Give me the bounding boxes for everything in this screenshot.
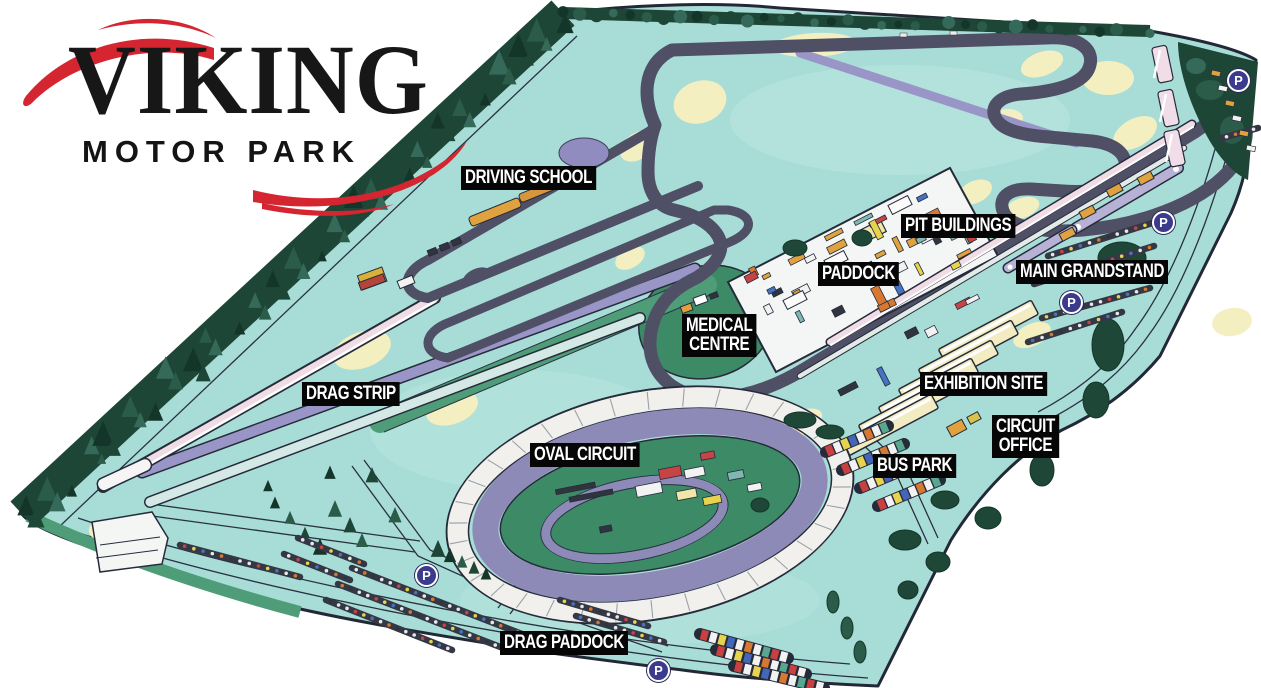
parking-icon: P [1152, 211, 1175, 234]
parking-icon: P [1227, 69, 1250, 92]
parking-icon: P [1060, 291, 1083, 314]
label-bus-park: BUS PARK [873, 454, 956, 478]
logo-subtitle: MOTOR PARK [82, 134, 361, 170]
logo: VIKING MOTOR PARK [10, 4, 500, 229]
map-canvas: DRIVING SCHOOL PIT BUILDINGS PADDOCK MAI… [0, 0, 1261, 688]
label-circuit-office: CIRCUIT OFFICE [992, 415, 1059, 458]
skid-pad [559, 138, 609, 168]
parking-icon: P [647, 659, 670, 682]
label-drag-paddock: DRAG PADDOCK [500, 631, 628, 655]
label-drag-strip: DRAG STRIP [302, 382, 400, 406]
label-exhibition-site: EXHIBITION SITE [920, 372, 1047, 396]
label-oval-circuit: OVAL CIRCUIT [530, 443, 640, 467]
logo-title: VIKING [68, 30, 429, 130]
parking-icon: P [415, 564, 438, 587]
label-medical-centre: MEDICAL CENTRE [682, 314, 756, 357]
label-pit-buildings: PIT BUILDINGS [901, 214, 1015, 238]
label-main-grandstand: MAIN GRANDSTAND [1016, 260, 1168, 284]
label-paddock: PADDOCK [818, 262, 899, 286]
